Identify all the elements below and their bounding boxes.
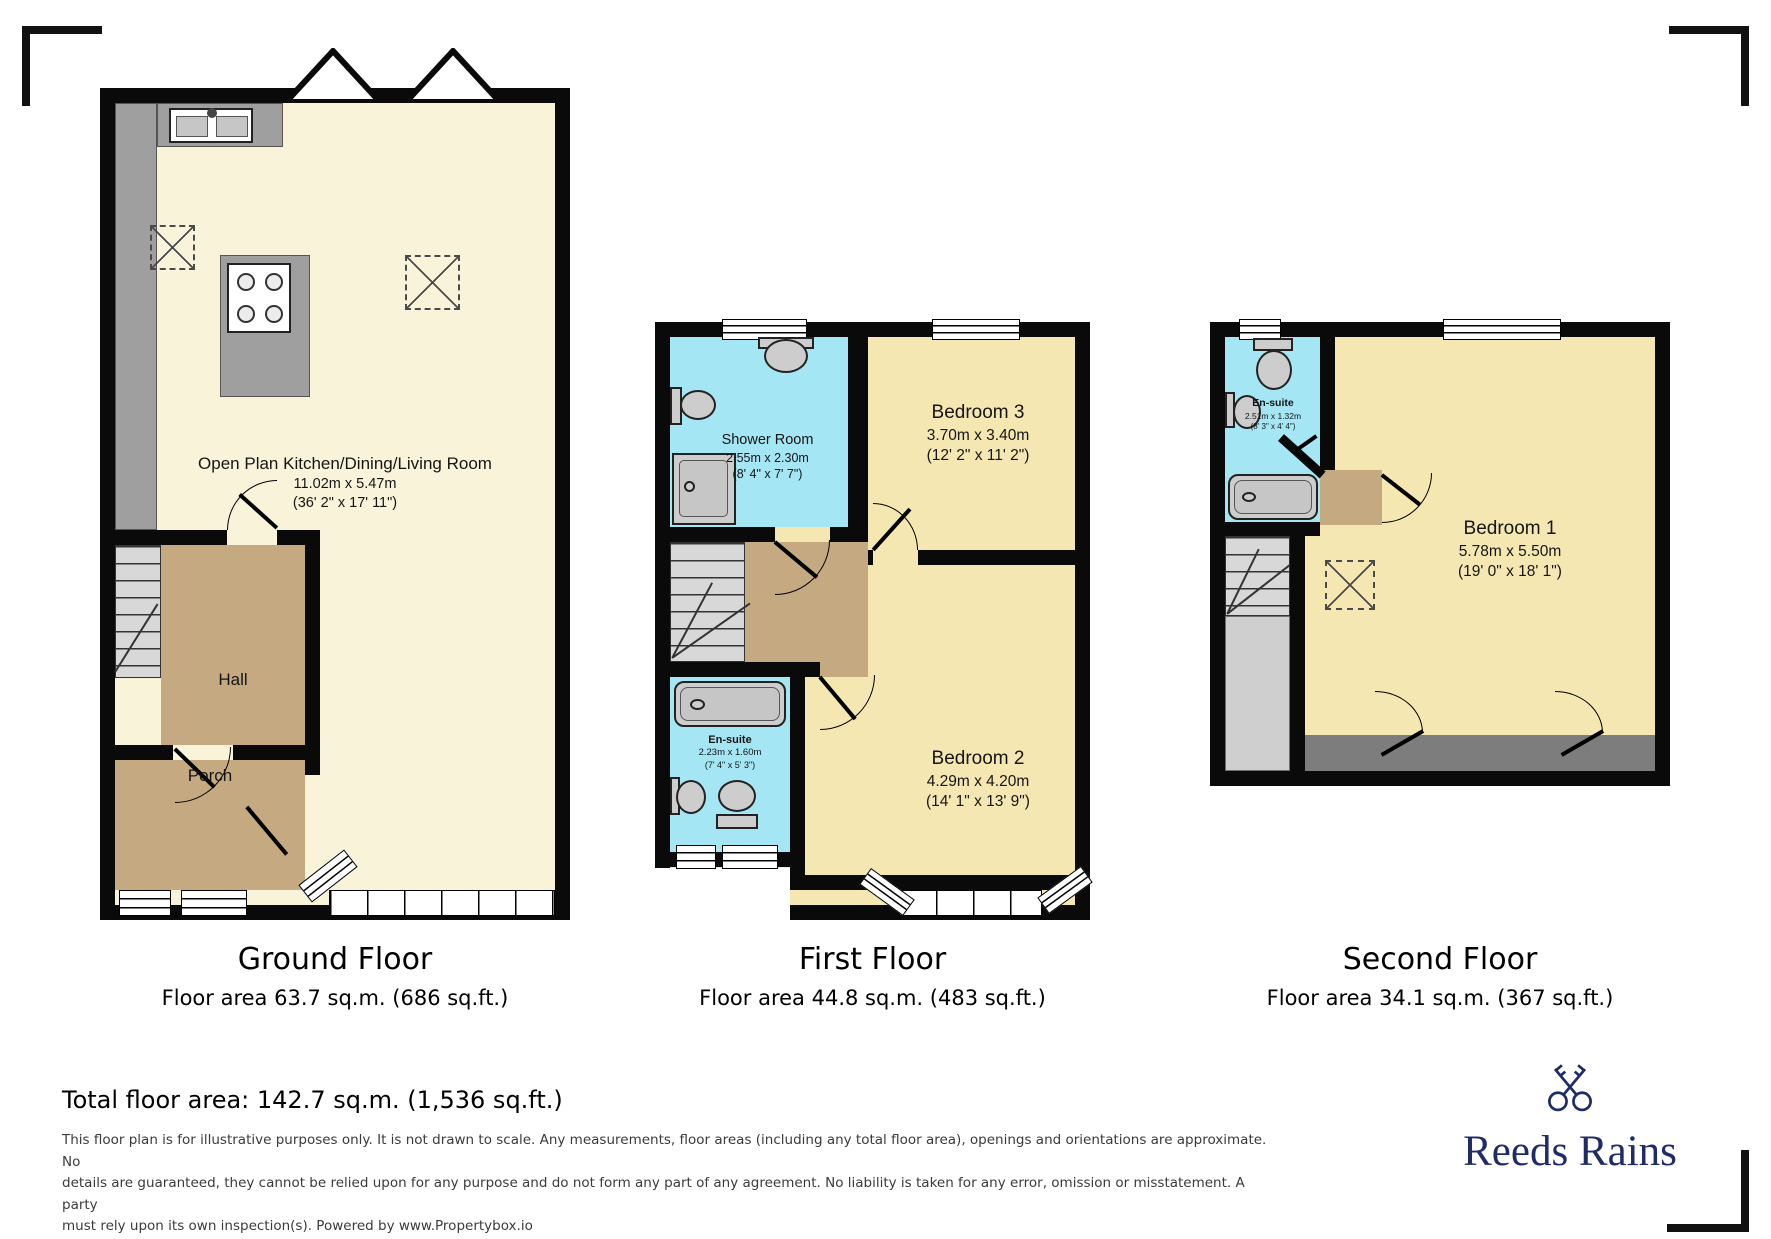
wall [670, 527, 775, 542]
ensuite-window [676, 845, 716, 869]
room-size-imperial: (7' 4" x 5' 3") [670, 760, 790, 772]
burner [237, 305, 255, 323]
room-size-metric: 3.70m x 3.40m [878, 426, 1078, 446]
crop-mark-top-left-v [22, 26, 30, 106]
wall [848, 337, 868, 542]
sink-bowl-right [216, 116, 248, 137]
room-name: Shower Room [685, 431, 850, 450]
burner [237, 273, 255, 291]
room-size-metric: 11.02m x 5.47m [145, 475, 545, 494]
burner [265, 273, 283, 291]
window [1443, 319, 1561, 340]
first-floor-plan: Shower Room 2.55m x 2.30m (8' 4" x 7' 7"… [655, 322, 1090, 920]
crop-mark-bottom-right-v [1741, 1150, 1749, 1232]
disclaimer-line: must rely upon its own inspection(s). Po… [62, 1216, 1272, 1238]
room-label-porch: Porch [115, 765, 305, 787]
porch-window [181, 890, 247, 916]
bay-window-band [329, 890, 555, 916]
bath-drain [1242, 492, 1256, 502]
window [1239, 319, 1281, 340]
room-size-imperial: (19' 0" x 18' 1") [1405, 562, 1615, 582]
ground-floor-caption: Ground Floor Floor area 63.7 sq.m. (686 … [100, 942, 570, 1010]
wall [233, 745, 305, 760]
room-size-metric: 2.51m x 1.32m [1227, 411, 1319, 422]
disclaimer-text: This floor plan is for illustrative purp… [62, 1130, 1272, 1238]
room-name: Bedroom 2 [878, 747, 1078, 772]
burner [265, 305, 283, 323]
bay-window-band [898, 890, 1042, 916]
room-name: Open Plan Kitchen/Dining/Living Room [145, 453, 545, 475]
room-size-metric: 2.55m x 2.30m [685, 450, 850, 466]
second-floor-plan: En-suite 2.51m x 1.32m (8' 3" x 4' 4") B… [1210, 322, 1670, 786]
crop-mark-top-right-h [1669, 26, 1749, 34]
porch-window [119, 890, 171, 916]
wall [670, 662, 820, 677]
room-hall [161, 545, 305, 745]
kitchen-sink-icon [169, 108, 253, 143]
toilet-icon [680, 390, 716, 420]
wall [790, 677, 805, 890]
room-label-shower: Shower Room 2.55m x 2.30m (8' 4" x 7' 7"… [685, 431, 850, 482]
wall [805, 875, 1075, 890]
room-label-bedroom1: Bedroom 1 5.78m x 5.50m (19' 0" x 18' 1"… [1405, 517, 1615, 582]
wall [1225, 522, 1320, 536]
bath-drain [690, 699, 705, 710]
gable-window-icon [403, 48, 503, 103]
floor-title: Second Floor [1210, 942, 1670, 977]
total-floor-area: Total floor area: 142.7 sq.m. (1,536 sq.… [62, 1086, 563, 1114]
wall [115, 530, 227, 545]
wall [1290, 536, 1305, 771]
crop-mark-bottom-right-h [1667, 1224, 1749, 1232]
sink-faucet [207, 108, 217, 118]
room-name: En-suite [670, 733, 790, 747]
basin-icon [764, 339, 808, 373]
bath-icon [1228, 474, 1318, 520]
room-size-metric: 5.78m x 5.50m [1405, 542, 1615, 562]
crop-mark-top-right-v [1741, 26, 1749, 106]
disclaimer-line: This floor plan is for illustrative purp… [62, 1130, 1272, 1173]
room-size-metric: 4.29m x 4.20m [878, 772, 1078, 792]
room-size-metric: 2.23m x 1.60m [670, 747, 790, 759]
crop-mark-top-left-h [22, 26, 102, 34]
floor-area: Floor area 63.7 sq.m. (686 sq.ft.) [100, 986, 570, 1010]
sink-bowl-left [176, 116, 208, 137]
room-name: En-suite [1227, 397, 1319, 411]
wall [277, 530, 305, 545]
wall [115, 745, 173, 760]
room-bedroom1-extension [1305, 525, 1335, 735]
brand-logo: Reeds Rains [1430, 1054, 1710, 1176]
room-label-ensuite: En-suite 2.51m x 1.32m (8' 3" x 4' 4") [1227, 397, 1319, 432]
wall [305, 530, 320, 775]
gable-window-icon [283, 48, 383, 103]
room-label-hall: Hall [161, 669, 305, 691]
hob-icon [227, 263, 291, 333]
room-size-imperial: (14' 1" x 13' 9") [878, 792, 1078, 812]
floor-area: Floor area 44.8 sq.m. (483 sq.ft.) [655, 986, 1090, 1010]
bath-icon [674, 681, 786, 727]
first-floor-caption: First Floor Floor area 44.8 sq.m. (483 s… [655, 942, 1090, 1010]
eaves-band [1290, 735, 1655, 771]
window [932, 319, 1020, 340]
wall [830, 527, 848, 542]
shower-drain [684, 481, 695, 492]
crossed-keys-icon [1531, 1054, 1609, 1120]
skylight-marker [405, 255, 460, 310]
staircase [670, 542, 745, 662]
ensuite-window [722, 845, 778, 869]
disclaimer-line: details are guaranteed, they cannot be r… [62, 1173, 1272, 1216]
room-label-bedroom3: Bedroom 3 3.70m x 3.40m (12' 2" x 11' 2"… [878, 401, 1078, 466]
second-floor-caption: Second Floor Floor area 34.1 sq.m. (367 … [1210, 942, 1670, 1010]
room-size-imperial: (12' 2" x 11' 2") [878, 446, 1078, 466]
wall [1320, 337, 1335, 470]
room-label-living: Open Plan Kitchen/Dining/Living Room 11.… [145, 453, 545, 513]
toilet-icon [718, 780, 756, 812]
room-size-imperial: (36' 2" x 17' 11") [145, 494, 545, 513]
wall [868, 550, 873, 565]
basin-icon [676, 780, 706, 814]
skylight-marker [150, 225, 195, 270]
room-label-ensuite: En-suite 2.23m x 1.60m (7' 4" x 5' 3") [670, 733, 790, 771]
floor-title: First Floor [655, 942, 1090, 977]
room-name: Bedroom 3 [878, 401, 1078, 426]
room-size-imperial: (8' 4" x 7' 7") [685, 466, 850, 482]
brand-name: Reeds Rains [1430, 1127, 1710, 1176]
toilet-tank [716, 814, 758, 829]
room-name: Bedroom 1 [1405, 517, 1615, 542]
floor-area: Floor area 34.1 sq.m. (367 sq.ft.) [1210, 986, 1670, 1010]
room-label-bedroom2: Bedroom 2 4.29m x 4.20m (14' 1" x 13' 9"… [878, 747, 1078, 812]
storage-area [1225, 616, 1290, 771]
floorplan-image: Open Plan Kitchen/Dining/Living Room 11.… [0, 0, 1771, 1239]
ground-floor-plan: Open Plan Kitchen/Dining/Living Room 11.… [100, 88, 570, 920]
landing [1320, 470, 1382, 525]
wall [918, 550, 1075, 565]
room-size-imperial: (8' 3" x 4' 4") [1227, 422, 1319, 432]
floor-title: Ground Floor [100, 942, 570, 977]
skylight-marker [1325, 560, 1375, 610]
toilet-icon [1256, 350, 1292, 390]
